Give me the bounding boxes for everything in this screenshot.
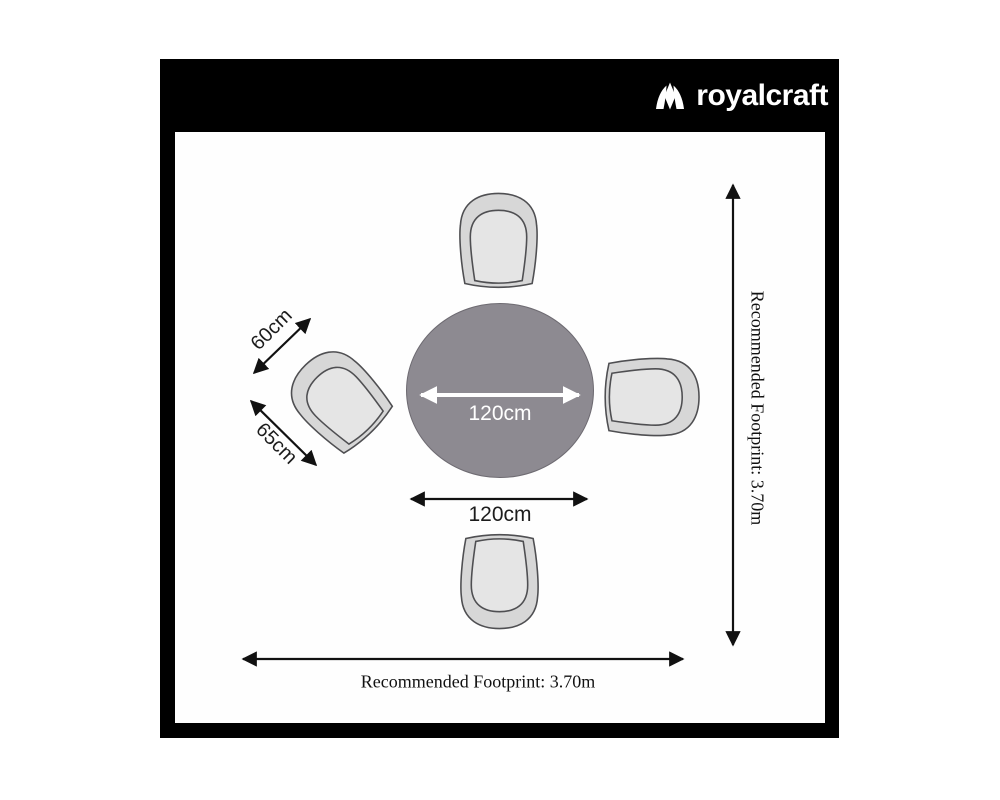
footprint-vertical-label: Recommended Footprint: 3.70m [747,291,768,525]
chair-bottom [453,533,546,635]
chair-depth-label: 65cm [251,419,302,470]
crown-icon [653,82,687,110]
table-diameter-label: 120cm [468,402,531,426]
chair-right [604,351,706,444]
brand-logo-text: royalcraft [696,79,828,113]
footprint-horizontal-label: Recommended Footprint: 3.70m [361,672,595,693]
diagram-canvas: 120cm 120cm 60cm 65cm Recommended Footpr… [175,132,825,723]
black-frame: royalcraft [160,59,839,738]
table-width-label: 120cm [468,503,531,527]
chair-width-label: 60cm [247,305,298,356]
chair-top [452,187,545,289]
dining-table [406,303,594,478]
brand-logo: royalcraft [653,59,828,132]
page: royalcraft [0,0,1000,800]
